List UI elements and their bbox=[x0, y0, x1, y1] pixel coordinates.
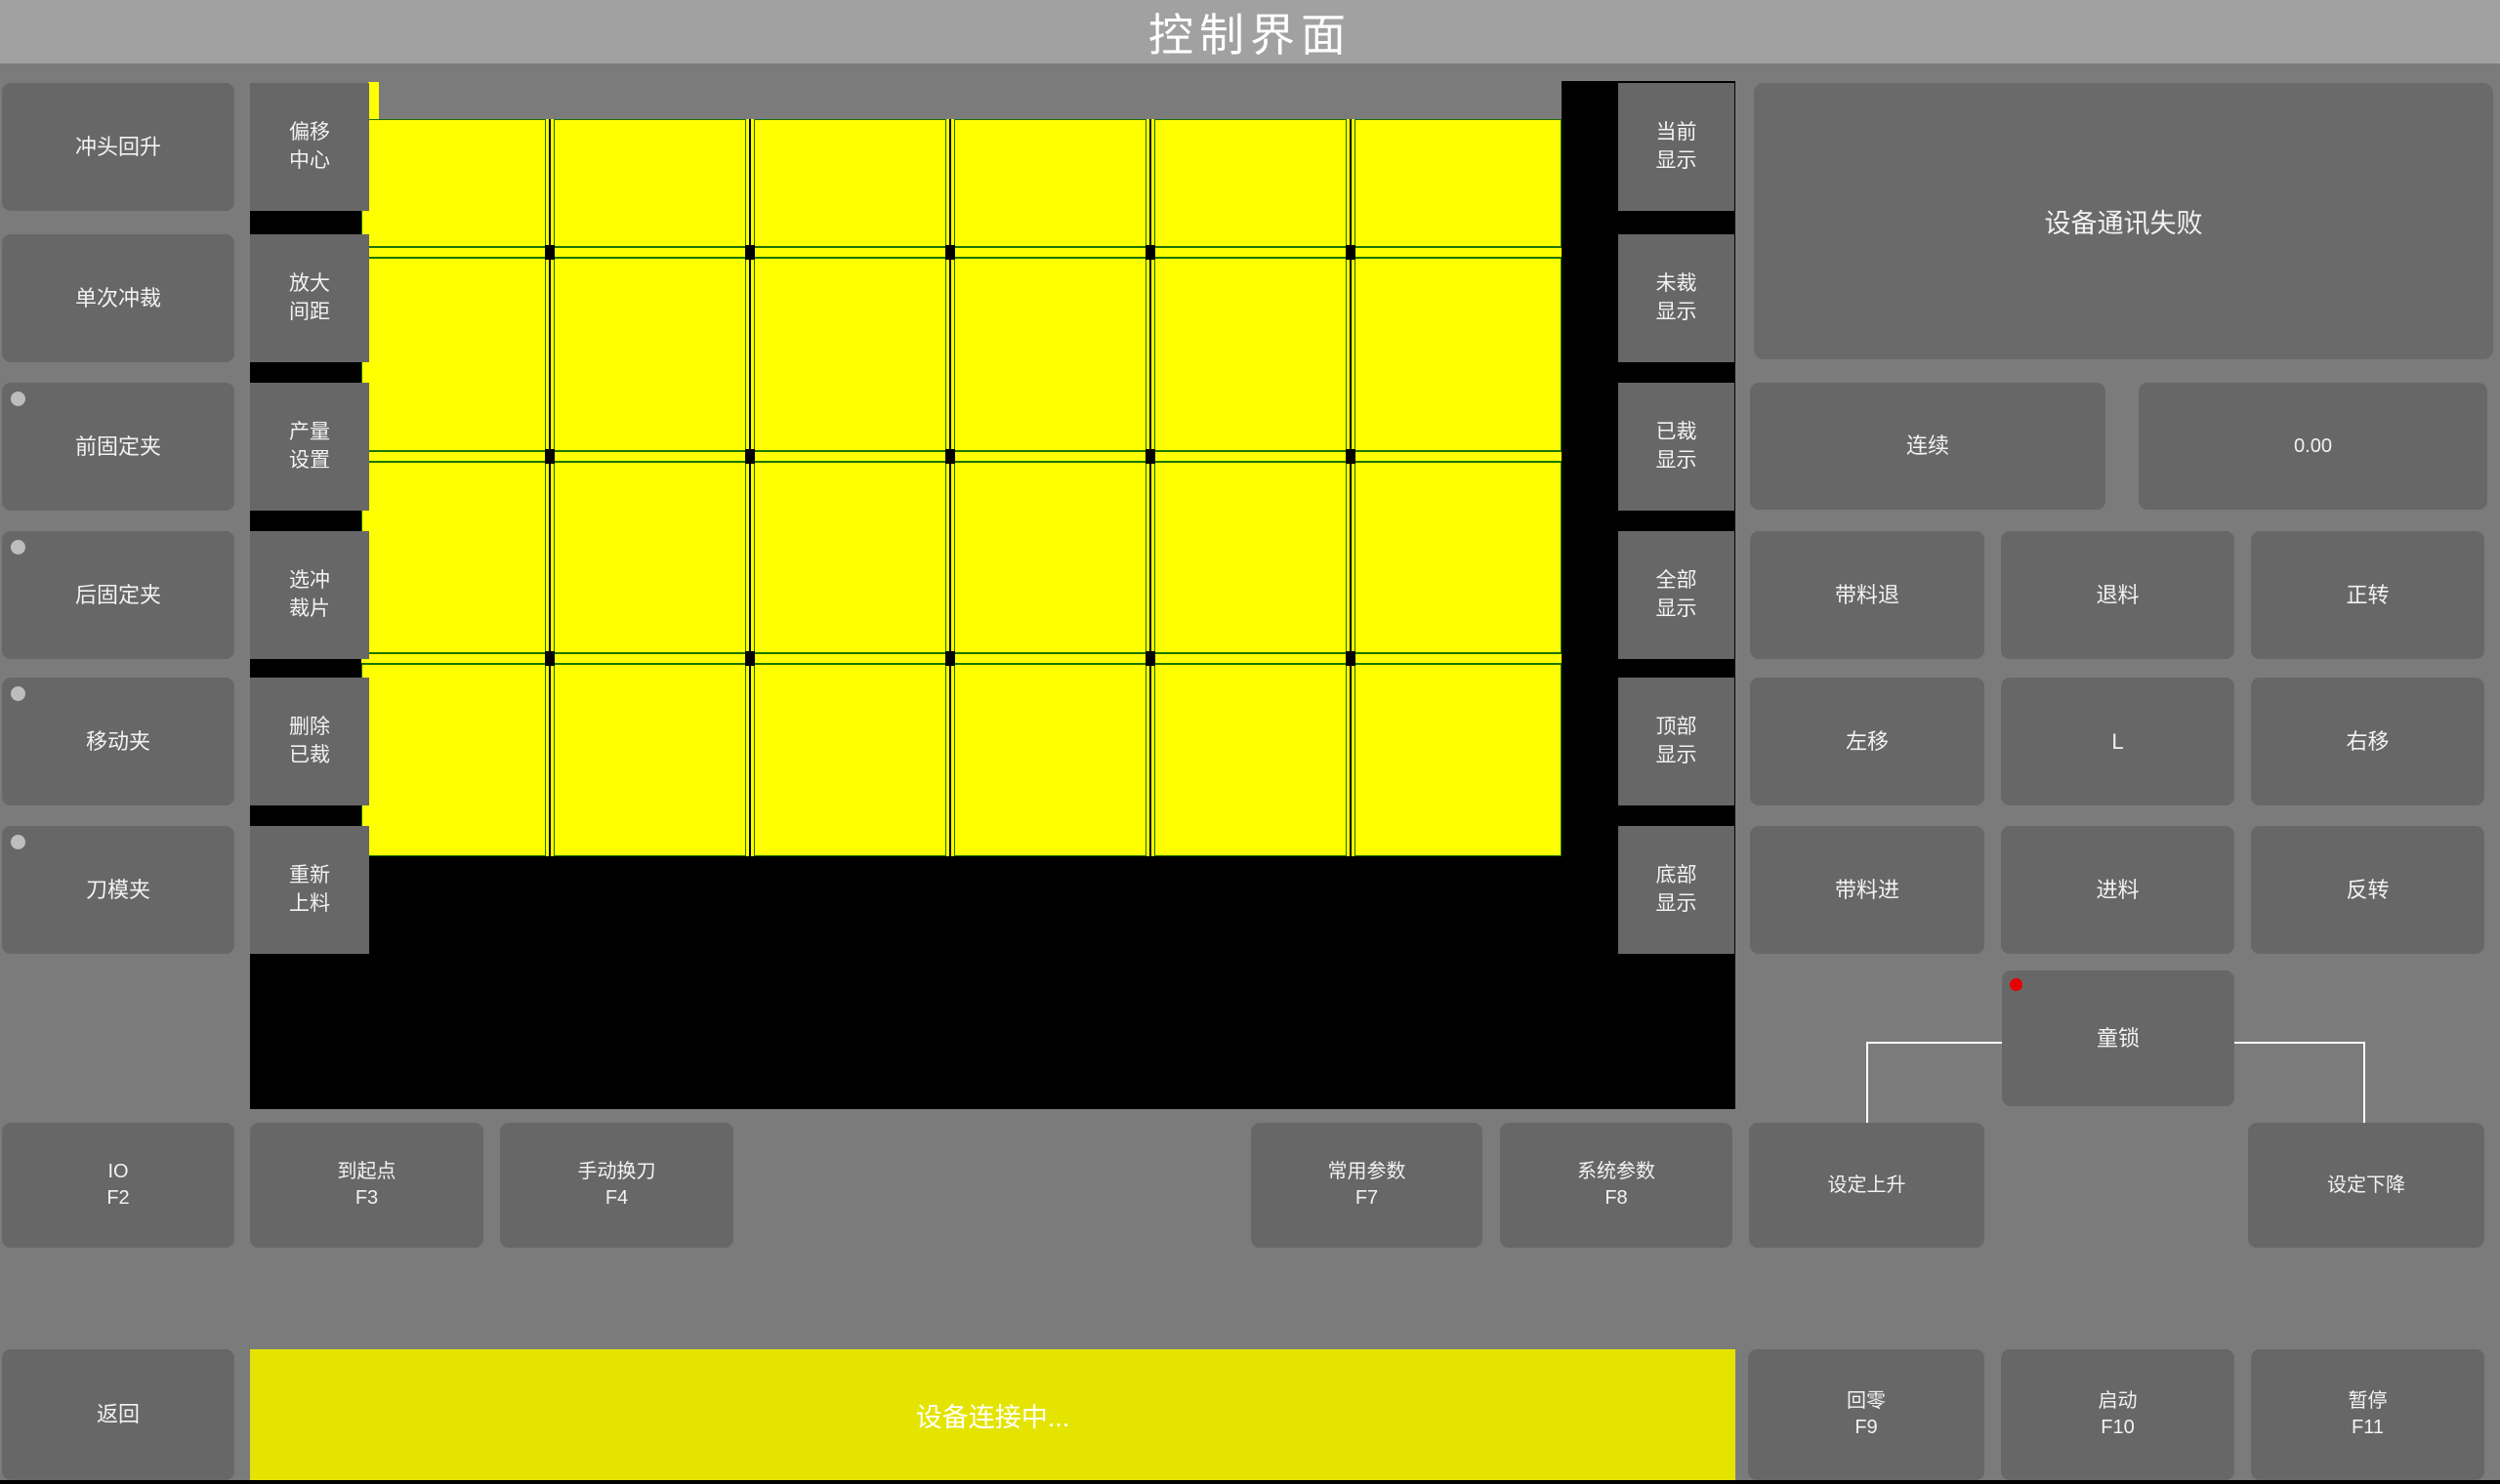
jog-button-带料进-label: 带料进 bbox=[1835, 876, 1899, 905]
view-button-全部显示-label: 全部 bbox=[1656, 567, 1697, 595]
device-message-text: 设备通讯失败 bbox=[2045, 202, 2203, 240]
strip-web bbox=[361, 653, 1562, 664]
tool-button-放大间距-label: 放大 bbox=[289, 270, 330, 298]
state-indicator-dot bbox=[11, 392, 25, 406]
jog-button-反转[interactable]: 反转 bbox=[2251, 826, 2484, 954]
view-button-底部显示-label: 显示 bbox=[1656, 890, 1697, 918]
tool-button-产量设置-label: 产量 bbox=[289, 419, 330, 446]
machine-button-后固定夹-label: 后固定夹 bbox=[75, 581, 161, 610]
fnkey-button-手动换刀-label: F4 bbox=[605, 1185, 628, 1212]
jog-button-左移[interactable]: 左移 bbox=[1750, 678, 1984, 805]
cut-intersection-notch bbox=[1146, 651, 1155, 666]
canvas-top-right-margin bbox=[1562, 63, 1735, 81]
tool-button-选冲裁片-label: 选冲 bbox=[289, 567, 330, 595]
tool-button-产量设置-label: 设置 bbox=[289, 447, 330, 474]
fnkey-button-常用参数-label: F7 bbox=[1355, 1185, 1378, 1212]
jog-button-退料[interactable]: 退料 bbox=[2001, 531, 2234, 659]
cut-intersection-notch bbox=[1346, 449, 1355, 464]
bottomkey-button-回零-label: F9 bbox=[1854, 1415, 1877, 1441]
fnkey-button-设定下降-label: 设定下降 bbox=[2327, 1173, 2405, 1199]
bottomkey-button-暂停-label: 暂停 bbox=[2349, 1388, 2388, 1415]
layout-piece-r4c5[interactable] bbox=[1154, 664, 1347, 856]
cut-intersection-notch bbox=[745, 449, 755, 464]
title-bar: 控制界面 bbox=[0, 0, 2500, 63]
layout-piece-r2c3[interactable] bbox=[754, 258, 946, 451]
layout-piece-r3c6[interactable] bbox=[1354, 462, 1562, 653]
position-value-text: 0.00 bbox=[2294, 433, 2332, 460]
piece-cut-line bbox=[749, 119, 751, 856]
layout-piece-r4c6[interactable] bbox=[1354, 664, 1562, 856]
view-button-已裁显示-label: 显示 bbox=[1656, 447, 1697, 474]
fnkey-button-系统参数-label: 系统参数 bbox=[1577, 1159, 1655, 1185]
machine-button-后固定夹[interactable]: 后固定夹 bbox=[2, 531, 234, 659]
strip-left-edge-marker bbox=[368, 82, 379, 119]
material-strip bbox=[361, 119, 1562, 856]
layout-piece-r3c1[interactable] bbox=[361, 462, 546, 653]
child-lock-active-indicator bbox=[2010, 978, 2022, 991]
tool-button-放大间距[interactable]: 放大间距 bbox=[250, 234, 369, 362]
jog-button-进料-label: 进料 bbox=[2096, 876, 2139, 905]
view-button-已裁显示[interactable]: 已裁显示 bbox=[1618, 383, 1734, 511]
piece-cut-line bbox=[1350, 119, 1352, 856]
view-button-已裁显示-label: 已裁 bbox=[1656, 419, 1697, 446]
cut-intersection-notch bbox=[945, 651, 955, 666]
layout-piece-r2c4[interactable] bbox=[954, 258, 1146, 451]
tool-button-重新上料-label: 重新 bbox=[289, 862, 330, 889]
view-button-底部显示-label: 底部 bbox=[1656, 862, 1697, 889]
machine-button-单次冲裁[interactable]: 单次冲裁 bbox=[2, 234, 234, 362]
cut-intersection-notch bbox=[745, 245, 755, 260]
jog-button-进料[interactable]: 进料 bbox=[2001, 826, 2234, 954]
tool-button-偏移中心[interactable]: 偏移中心 bbox=[250, 83, 369, 211]
jog-button-右移-label: 右移 bbox=[2346, 727, 2389, 757]
view-button-顶部显示-label: 顶部 bbox=[1656, 714, 1697, 741]
bottomkey-button-暂停[interactable]: 暂停F11 bbox=[2251, 1349, 2484, 1480]
machine-button-冲头回升-label: 冲头回升 bbox=[75, 133, 161, 162]
layout-piece-r4c4[interactable] bbox=[954, 664, 1146, 856]
cut-intersection-notch bbox=[945, 449, 955, 464]
view-button-顶部显示-label: 显示 bbox=[1656, 742, 1697, 769]
piece-cut-line bbox=[949, 119, 951, 856]
jog-button-L-label: L bbox=[2111, 727, 2123, 757]
jog-button-反转-label: 反转 bbox=[2346, 876, 2389, 905]
view-button-未裁显示-label: 显示 bbox=[1656, 299, 1697, 326]
view-button-全部显示-label: 显示 bbox=[1656, 596, 1697, 623]
tool-button-删除已裁[interactable]: 删除已裁 bbox=[250, 678, 369, 805]
cut-intersection-notch bbox=[945, 245, 955, 260]
device-message-box: 设备通讯失败 bbox=[1754, 83, 2493, 359]
machine-button-前固定夹-label: 前固定夹 bbox=[75, 433, 161, 462]
cut-intersection-notch bbox=[1346, 651, 1355, 666]
jog-button-带料退-label: 带料退 bbox=[1835, 581, 1899, 610]
child-lock-link-right-leg bbox=[2363, 1042, 2365, 1123]
connection-status-bar: 设备连接中... bbox=[250, 1349, 1735, 1480]
jog-button-正转[interactable]: 正转 bbox=[2251, 531, 2484, 659]
jog-button-带料进[interactable]: 带料进 bbox=[1750, 826, 1984, 954]
view-button-未裁显示[interactable]: 未裁显示 bbox=[1618, 234, 1734, 362]
machine-button-移动夹-label: 移动夹 bbox=[86, 727, 150, 757]
fnkey-button-常用参数[interactable]: 常用参数F7 bbox=[1251, 1123, 1482, 1248]
jog-button-带料退[interactable]: 带料退 bbox=[1750, 531, 1984, 659]
page-title: 控制界面 bbox=[1148, 0, 1352, 64]
cut-intersection-notch bbox=[1146, 449, 1155, 464]
tool-button-删除已裁-label: 删除 bbox=[289, 714, 330, 741]
bottomkey-button-启动-label: 启动 bbox=[2099, 1388, 2138, 1415]
fnkey-button-手动换刀[interactable]: 手动换刀F4 bbox=[500, 1123, 733, 1248]
machine-button-移动夹[interactable]: 移动夹 bbox=[2, 678, 234, 805]
child-lock-button[interactable]: 童锁 bbox=[2002, 970, 2234, 1106]
cut-intersection-notch bbox=[745, 651, 755, 666]
piece-cut-line bbox=[549, 119, 551, 856]
layout-piece-r3c2[interactable] bbox=[554, 462, 746, 653]
layout-piece-r4c3[interactable] bbox=[754, 664, 946, 856]
layout-piece-r1c4[interactable] bbox=[954, 119, 1146, 247]
bottomkey-button-启动-label: F10 bbox=[2101, 1415, 2134, 1441]
fnkey-button-到起点-label: 到起点 bbox=[338, 1159, 396, 1185]
jog-button-L[interactable]: L bbox=[2001, 678, 2234, 805]
connection-status-text: 设备连接中... bbox=[916, 1396, 1070, 1434]
view-button-当前显示[interactable]: 当前显示 bbox=[1618, 83, 1734, 211]
jog-button-左移-label: 左移 bbox=[1846, 727, 1889, 757]
tool-button-产量设置[interactable]: 产量设置 bbox=[250, 383, 369, 511]
cutting-layout-canvas bbox=[250, 63, 1735, 1109]
bottomkey-button-回零-label: 回零 bbox=[1847, 1388, 1886, 1415]
tool-button-选冲裁片-label: 裁片 bbox=[289, 596, 330, 623]
child-lock-label: 童锁 bbox=[2097, 1024, 2140, 1053]
strip-web bbox=[361, 451, 1562, 462]
bottomkey-button-启动[interactable]: 启动F10 bbox=[2001, 1349, 2234, 1480]
tool-button-重新上料[interactable]: 重新上料 bbox=[250, 826, 369, 954]
fnkey-button-设定上升-label: 设定上升 bbox=[1828, 1173, 1906, 1199]
layout-piece-r3c4[interactable] bbox=[954, 462, 1146, 653]
layout-piece-r1c3[interactable] bbox=[754, 119, 946, 247]
fnkey-button-到起点-label: F3 bbox=[355, 1185, 378, 1212]
back-button[interactable]: 返回 bbox=[2, 1349, 234, 1480]
cut-intersection-notch bbox=[545, 651, 555, 666]
fnkey-button-设定上升[interactable]: 设定上升 bbox=[1749, 1123, 1984, 1248]
fnkey-button-设定下降[interactable]: 设定下降 bbox=[2248, 1123, 2484, 1248]
state-indicator-dot bbox=[11, 686, 25, 701]
view-button-全部显示[interactable]: 全部显示 bbox=[1618, 531, 1734, 659]
jog-button-退料-label: 退料 bbox=[2096, 581, 2139, 610]
layout-piece-r2c1[interactable] bbox=[361, 258, 546, 451]
state-indicator-dot bbox=[11, 540, 25, 555]
fnkey-button-系统参数-label: F8 bbox=[1604, 1185, 1627, 1212]
fnkey-button-常用参数-label: 常用参数 bbox=[1328, 1159, 1406, 1185]
layout-piece-r1c1[interactable] bbox=[361, 119, 546, 247]
fnkey-button-IO[interactable]: IOF2 bbox=[2, 1123, 234, 1248]
mode-continuous-label: 连续 bbox=[1906, 432, 1949, 461]
position-value-display: 0.00 bbox=[2139, 383, 2487, 510]
control-screen: { "title_bar": { "title": "控制界面" }, "lef… bbox=[0, 0, 2500, 1484]
machine-button-刀模夹[interactable]: 刀模夹 bbox=[2, 826, 234, 954]
back-label: 返回 bbox=[97, 1400, 140, 1429]
jog-button-右移[interactable]: 右移 bbox=[2251, 678, 2484, 805]
mode-continuous-button[interactable]: 连续 bbox=[1750, 383, 2105, 510]
machine-button-单次冲裁-label: 单次冲裁 bbox=[75, 284, 161, 313]
machine-button-冲头回升[interactable]: 冲头回升 bbox=[2, 83, 234, 211]
layout-piece-r1c5[interactable] bbox=[1154, 119, 1347, 247]
cut-intersection-notch bbox=[545, 449, 555, 464]
layout-piece-r4c1[interactable] bbox=[361, 664, 546, 856]
fnkey-button-到起点[interactable]: 到起点F3 bbox=[250, 1123, 483, 1248]
child-lock-link-left-leg bbox=[1866, 1042, 1868, 1123]
piece-cut-line bbox=[1149, 119, 1151, 856]
tool-button-偏移中心-label: 中心 bbox=[289, 147, 330, 175]
view-button-当前显示-label: 当前 bbox=[1656, 119, 1697, 146]
cut-intersection-notch bbox=[1146, 245, 1155, 260]
machine-button-刀模夹-label: 刀模夹 bbox=[86, 876, 150, 905]
tool-button-删除已裁-label: 已裁 bbox=[289, 742, 330, 769]
bottomkey-button-暂停-label: F11 bbox=[2352, 1415, 2384, 1441]
canvas-top-margin bbox=[250, 63, 1562, 119]
cut-intersection-notch bbox=[545, 245, 555, 260]
tool-button-重新上料-label: 上料 bbox=[289, 890, 330, 918]
view-button-底部显示[interactable]: 底部显示 bbox=[1618, 826, 1734, 954]
tool-button-放大间距-label: 间距 bbox=[289, 299, 330, 326]
layout-piece-r3c3[interactable] bbox=[754, 462, 946, 653]
layout-piece-r2c6[interactable] bbox=[1354, 258, 1562, 451]
view-button-顶部显示[interactable]: 顶部显示 bbox=[1618, 678, 1734, 805]
layout-piece-r2c5[interactable] bbox=[1154, 258, 1347, 451]
cut-intersection-notch bbox=[1346, 245, 1355, 260]
bottomkey-button-回零[interactable]: 回零F9 bbox=[1748, 1349, 1984, 1480]
view-button-当前显示-label: 显示 bbox=[1656, 147, 1697, 175]
layout-piece-r4c2[interactable] bbox=[554, 664, 746, 856]
state-indicator-dot bbox=[11, 835, 25, 849]
machine-button-前固定夹[interactable]: 前固定夹 bbox=[2, 383, 234, 511]
layout-piece-r3c5[interactable] bbox=[1154, 462, 1347, 653]
jog-button-正转-label: 正转 bbox=[2346, 581, 2389, 610]
strip-web bbox=[361, 247, 1562, 258]
layout-piece-r1c6[interactable] bbox=[1354, 119, 1562, 247]
layout-piece-r1c2[interactable] bbox=[554, 119, 746, 247]
fnkey-button-手动换刀-label: 手动换刀 bbox=[578, 1159, 656, 1185]
layout-piece-r2c2[interactable] bbox=[554, 258, 746, 451]
fnkey-button-IO-label: F2 bbox=[106, 1185, 129, 1212]
tool-button-选冲裁片[interactable]: 选冲裁片 bbox=[250, 531, 369, 659]
view-button-未裁显示-label: 未裁 bbox=[1656, 270, 1697, 298]
tool-button-偏移中心-label: 偏移 bbox=[289, 119, 330, 146]
fnkey-button-系统参数[interactable]: 系统参数F8 bbox=[1500, 1123, 1732, 1248]
fnkey-button-IO-label: IO bbox=[107, 1159, 128, 1185]
